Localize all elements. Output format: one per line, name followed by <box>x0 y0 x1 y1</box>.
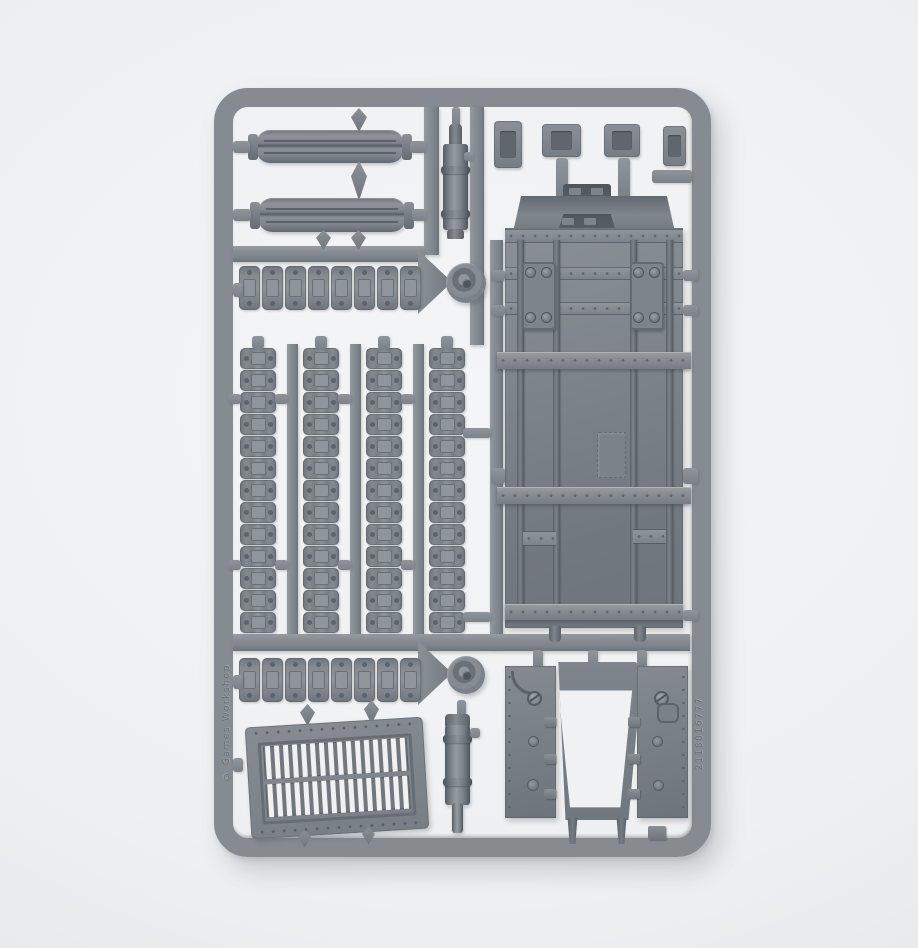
track-link <box>240 524 276 545</box>
ramp-bolt-detail <box>653 780 664 791</box>
track-link <box>354 658 375 702</box>
track-link <box>366 568 402 589</box>
internal-rail-vertical-6 <box>413 344 424 642</box>
track-link <box>366 480 402 501</box>
hull-rivet-strip <box>505 230 683 242</box>
ramp-bolt-detail <box>652 736 663 747</box>
grille-slot <box>400 738 407 771</box>
track-link <box>240 502 276 523</box>
connector-stub <box>683 270 698 281</box>
internal-rail-vertical-4 <box>287 344 298 642</box>
connector-stub <box>683 468 698 484</box>
grille-slot <box>285 783 292 816</box>
hull-small-strip <box>523 532 556 545</box>
ramp-hinge-tab <box>628 754 640 764</box>
hull-cross-beam <box>497 352 691 369</box>
hull-cross-beam <box>497 487 691 504</box>
track-link <box>303 348 339 369</box>
track-link <box>429 546 465 567</box>
grille-slot <box>310 743 317 776</box>
connector-stub <box>401 394 414 404</box>
track-link <box>331 658 352 702</box>
connector-stub <box>412 209 426 221</box>
internal-rail-vertical-3 <box>490 240 503 648</box>
track-link <box>303 370 339 391</box>
track-link <box>429 414 465 435</box>
track-link <box>366 612 402 633</box>
track-link <box>303 436 339 457</box>
track-link <box>240 546 276 567</box>
connector-stub <box>228 394 241 404</box>
connector-stub <box>252 336 264 349</box>
hull-access-plate <box>597 432 626 478</box>
connector-stub <box>683 610 698 621</box>
track-link <box>240 414 276 435</box>
track-link <box>366 392 402 413</box>
track-link <box>366 546 402 567</box>
grille-slot <box>328 742 335 775</box>
connector-stub <box>491 305 505 316</box>
track-link <box>429 458 465 479</box>
internal-rail-horizontal-2 <box>233 634 690 651</box>
connector-stub <box>378 336 390 349</box>
track-run-vertical-1 <box>240 348 276 634</box>
grille-slot <box>330 780 337 813</box>
track-link <box>240 436 276 457</box>
connector-stub <box>275 560 288 570</box>
track-link <box>429 370 465 391</box>
track-link <box>262 658 283 702</box>
track-link <box>240 612 276 633</box>
grille-slot <box>265 746 272 779</box>
connector-stub <box>233 283 243 297</box>
track-guard-part-1 <box>256 130 404 163</box>
track-link <box>400 266 421 310</box>
mounting-bracket-part-2 <box>542 124 581 157</box>
connector-stub <box>233 758 243 772</box>
track-link <box>366 524 402 545</box>
connector-stub <box>491 270 505 281</box>
track-link <box>240 458 276 479</box>
track-link <box>240 348 276 369</box>
track-run-horizontal-bottom <box>239 658 421 702</box>
track-link <box>429 590 465 611</box>
track-link <box>366 414 402 435</box>
connector-stub <box>683 305 698 316</box>
internal-rail-vertical-2 <box>470 107 484 345</box>
grille-slot <box>276 783 283 816</box>
grille-slot <box>301 744 308 777</box>
track-link <box>366 436 402 457</box>
track-link <box>303 480 339 501</box>
grille-slot <box>366 778 373 811</box>
track-link <box>303 546 339 567</box>
hull-suspension-mount-left <box>522 262 556 330</box>
track-link <box>331 266 352 310</box>
ramp-hinge-tab <box>628 717 640 727</box>
internal-rail-horizontal-1 <box>233 246 425 262</box>
grille-slot <box>391 738 398 771</box>
grille-slot <box>274 746 281 779</box>
track-link <box>240 590 276 611</box>
connector-stub <box>315 336 327 349</box>
connector-stub <box>410 141 426 153</box>
track-link <box>308 658 329 702</box>
mounting-bracket-part-1 <box>494 121 522 168</box>
connector-stub <box>233 209 251 221</box>
connector-stub <box>618 158 630 198</box>
track-link <box>285 266 306 310</box>
connector-stub <box>233 675 243 689</box>
grille-slot <box>382 739 389 772</box>
hull-bottom-beam <box>505 604 683 620</box>
grille-slot <box>303 782 310 815</box>
track-link <box>400 658 421 702</box>
track-link <box>262 266 283 310</box>
track-link <box>377 266 398 310</box>
grille-slot <box>283 745 290 778</box>
track-link <box>377 658 398 702</box>
ramp-hinge-tab <box>544 717 556 727</box>
ramp-hinge-tab <box>544 789 556 799</box>
track-link <box>366 458 402 479</box>
grille-slot <box>384 777 391 810</box>
track-link <box>303 568 339 589</box>
road-wheel-hub-part-top <box>446 263 486 303</box>
internal-rail-vertical-5 <box>350 344 361 642</box>
embossed-part-code: 2118016777 <box>691 668 710 798</box>
ramp-bolt-detail <box>527 779 539 791</box>
mounting-bracket-part-3 <box>604 124 640 157</box>
connector-stub <box>233 141 250 153</box>
ramp-screw-detail <box>527 691 542 706</box>
grille-slot <box>339 780 346 813</box>
grille-slot <box>364 740 371 773</box>
hull-suspension-mount-right <box>630 262 664 330</box>
track-link <box>429 502 465 523</box>
ramp-latch-detail <box>657 703 679 723</box>
track-run-horizontal-top <box>239 266 421 310</box>
hull-rib <box>666 240 673 608</box>
track-link <box>240 370 276 391</box>
track-link <box>429 480 465 501</box>
ramp-hinge-tab <box>628 789 640 799</box>
grille-slot <box>294 782 301 815</box>
track-link <box>303 392 339 413</box>
track-link <box>366 370 402 391</box>
track-guard-part-2 <box>258 198 406 232</box>
track-link <box>240 568 276 589</box>
connector-stub <box>491 468 505 484</box>
track-link <box>285 658 306 702</box>
exhaust-cylinder-bottom-tip <box>452 803 463 833</box>
internal-rail-vertical-1 <box>424 107 439 255</box>
track-link <box>240 392 276 413</box>
exhaust-cylinder-top-base <box>447 229 464 239</box>
connector-stub <box>463 612 491 622</box>
grille-slot <box>312 781 319 814</box>
grille-slot <box>355 741 362 774</box>
grille-slot <box>292 744 299 777</box>
grille-slot <box>348 779 355 812</box>
grille-slot <box>393 776 400 809</box>
connector-stub <box>464 152 473 161</box>
connector-stub <box>338 394 351 404</box>
ramp-hinge-tab <box>544 754 556 764</box>
track-link <box>366 590 402 611</box>
road-wheel-hub-part-bottom <box>447 656 485 694</box>
grille-slot <box>319 743 326 776</box>
hull-small-strip <box>633 530 666 543</box>
track-link <box>240 480 276 501</box>
track-run-vertical-3 <box>366 348 402 634</box>
track-link <box>303 414 339 435</box>
connector-stub <box>338 560 351 570</box>
track-link <box>429 436 465 457</box>
grille-slot <box>375 777 382 810</box>
track-link <box>429 568 465 589</box>
track-link <box>429 348 465 369</box>
grille-slot <box>346 741 353 774</box>
grille-slot <box>267 784 274 817</box>
connector-stub <box>470 728 480 738</box>
track-link <box>303 524 339 545</box>
grille-slot <box>337 742 344 775</box>
connector-stub <box>441 336 453 349</box>
small-block-part <box>648 826 666 840</box>
track-link <box>303 590 339 611</box>
track-link <box>303 502 339 523</box>
photo-of-model-sprue: © Games Workshop 2118016777 <box>0 0 918 948</box>
track-link <box>429 612 465 633</box>
connector-stub <box>463 428 491 438</box>
connector-stub <box>275 394 288 404</box>
track-link <box>366 348 402 369</box>
exhaust-cylinder-top-tip <box>449 124 462 146</box>
grille-slot <box>373 739 380 772</box>
connector-stub <box>228 560 241 570</box>
grille-slot <box>321 781 328 814</box>
grille-slot <box>402 776 409 809</box>
track-link <box>366 502 402 523</box>
engine-grille-part <box>245 717 430 840</box>
exhaust-cylinder-ring <box>441 210 470 218</box>
mounting-bracket-part-4 <box>663 126 686 166</box>
track-link <box>303 612 339 633</box>
hull-bottom-peg <box>634 626 646 642</box>
grille-slot <box>357 778 364 811</box>
track-link <box>429 524 465 545</box>
ramp-bolt-detail <box>528 736 539 747</box>
track-run-vertical-2 <box>303 348 339 634</box>
connector-stub <box>652 170 692 183</box>
track-link <box>308 266 329 310</box>
track-link <box>429 392 465 413</box>
track-guard-2-end-left <box>250 202 260 229</box>
track-link <box>303 458 339 479</box>
exhaust-cylinder-ring <box>441 166 470 174</box>
track-run-vertical-4 <box>429 348 465 634</box>
connector-stub <box>401 560 414 570</box>
hull-bottom-peg <box>549 626 561 642</box>
track-link <box>354 266 375 310</box>
exhaust-cylinder-ring <box>443 735 472 743</box>
exhaust-cylinder-ring <box>443 778 472 786</box>
